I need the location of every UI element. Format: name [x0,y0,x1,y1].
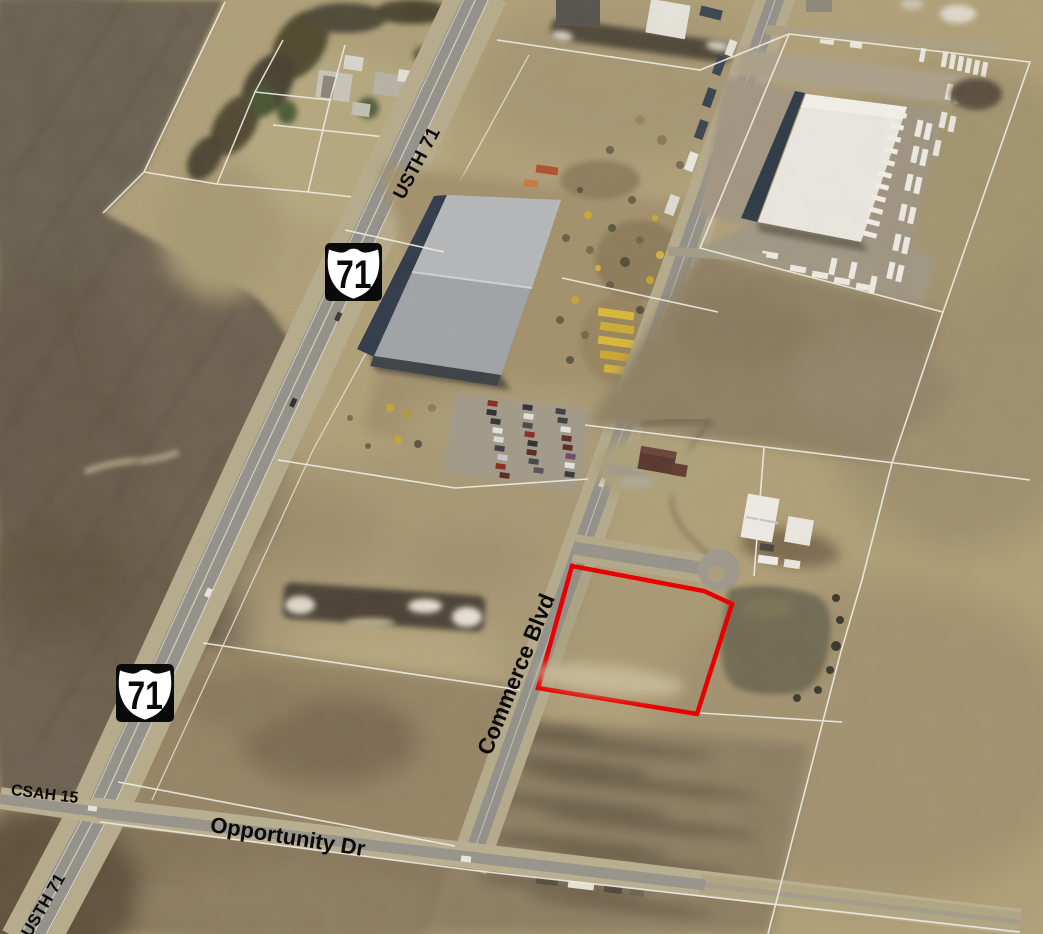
svg-text:71: 71 [336,252,372,297]
svg-text:71: 71 [127,673,163,718]
